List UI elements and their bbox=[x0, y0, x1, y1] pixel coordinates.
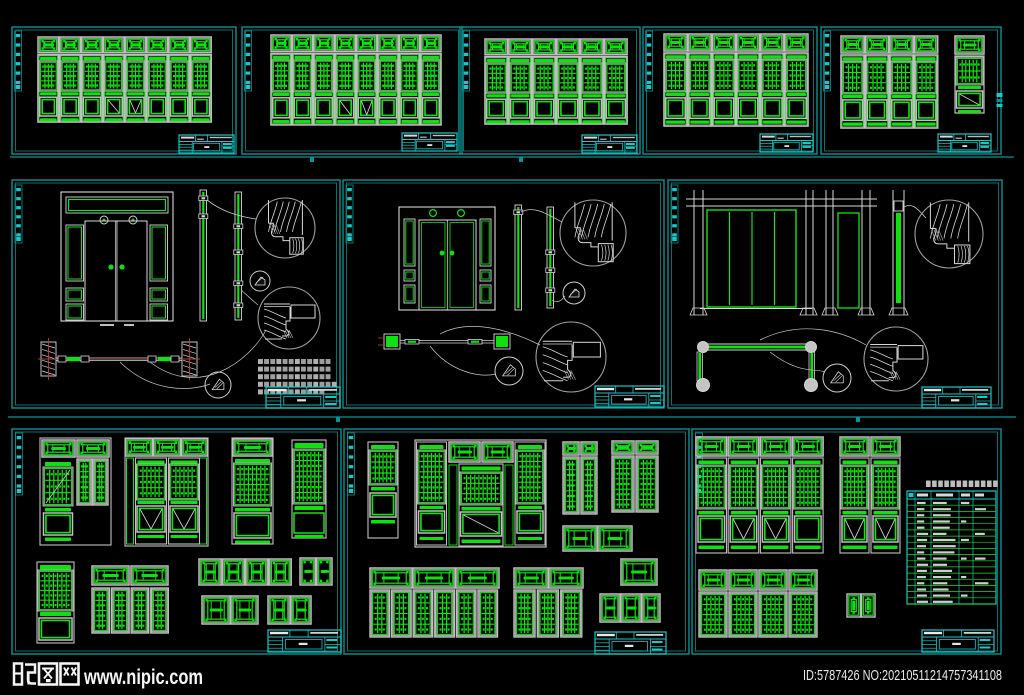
svg-text:ID:5787426 NO:2021051121475734: ID:5787426 NO:20210511214757341108 bbox=[803, 667, 1002, 684]
svg-text:www.nipic.com: www.nipic.com bbox=[83, 665, 203, 689]
